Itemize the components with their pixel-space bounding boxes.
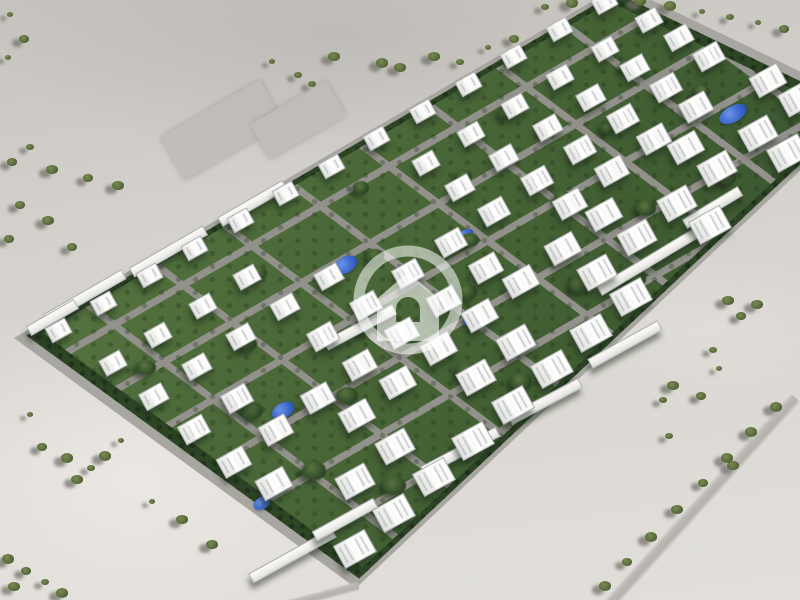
desert-bush — [15, 201, 24, 209]
desert-bush — [42, 216, 53, 225]
desert-bush — [56, 588, 69, 598]
desert-bush — [394, 63, 405, 72]
aerial-masterplan-render — [0, 0, 800, 600]
desert-bush — [698, 479, 707, 487]
desert-bush — [709, 347, 717, 353]
desert-bush — [699, 9, 705, 14]
desert-bush — [27, 412, 33, 417]
desert-bush — [8, 582, 19, 591]
desert-bush — [622, 558, 631, 566]
desert-bushes-layer — [0, 0, 800, 600]
desert-bush — [664, 1, 677, 11]
desert-bush — [21, 567, 30, 575]
desert-bush — [46, 165, 57, 174]
desert-bush — [99, 451, 112, 461]
desert-bush — [376, 58, 389, 68]
desert-bush — [149, 499, 155, 504]
desert-bush — [671, 505, 682, 514]
desert-bush — [716, 366, 722, 371]
desert-bush — [7, 12, 13, 17]
desert-bush — [41, 579, 49, 585]
desert-bush — [206, 540, 217, 549]
desert-bush — [751, 300, 762, 309]
desert-bush — [745, 427, 758, 437]
desert-bush — [308, 81, 316, 87]
desert-bush — [87, 465, 95, 471]
desert-bush — [456, 59, 464, 65]
desert-bush — [736, 312, 745, 320]
desert-bush — [428, 52, 439, 61]
desert-bush — [634, 0, 647, 6]
desert-bush — [779, 25, 788, 33]
desert-bush — [269, 59, 275, 64]
desert-bush — [485, 45, 491, 50]
desert-bush — [541, 4, 549, 10]
desert-bush — [509, 35, 518, 43]
desert-bush — [67, 243, 76, 251]
desert-bush — [4, 235, 13, 243]
desert-bush — [5, 55, 11, 60]
desert-bush — [26, 144, 34, 150]
desert-bush — [328, 52, 339, 61]
desert-bush — [118, 438, 124, 443]
desert-bush — [721, 453, 734, 463]
desert-bush — [37, 443, 46, 451]
desert-bush — [727, 461, 738, 470]
desert-bush — [176, 515, 187, 524]
desert-bush — [71, 475, 82, 484]
desert-bush — [667, 381, 678, 390]
desert-bush — [659, 397, 667, 403]
desert-bush — [722, 296, 733, 305]
desert-bush — [19, 35, 28, 43]
desert-bush — [61, 453, 74, 463]
desert-bush — [696, 392, 705, 400]
desert-bush — [7, 158, 16, 166]
desert-bush — [2, 554, 15, 564]
desert-bush — [112, 181, 123, 190]
desert-bush — [83, 174, 92, 182]
desert-bush — [645, 532, 658, 542]
desert-bush — [770, 402, 783, 412]
desert-bush — [294, 72, 302, 78]
desert-bush — [566, 0, 579, 8]
desert-bush — [755, 20, 761, 25]
desert-bush — [726, 14, 734, 20]
desert-bush — [665, 433, 673, 439]
desert-bush — [599, 581, 612, 591]
